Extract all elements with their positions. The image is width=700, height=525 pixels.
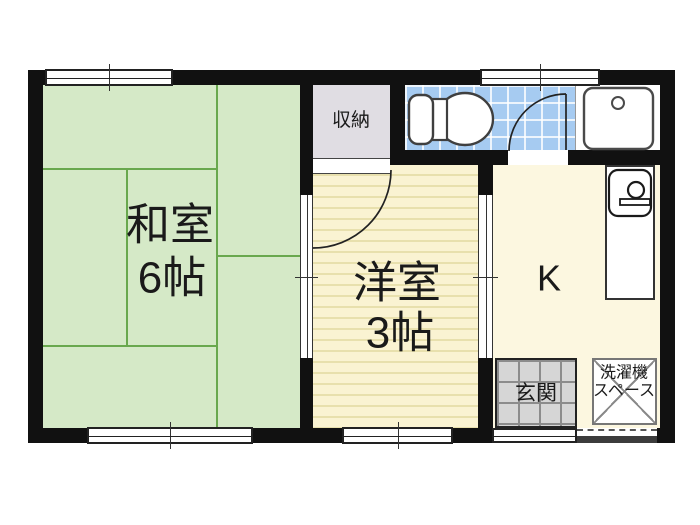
entrance-step: [577, 436, 657, 443]
window-icon: [480, 69, 600, 86]
washer-space-label: 洗濯機 スペース: [593, 365, 655, 402]
floor-plan: 和室 6帖 洋室 3帖 K 収納 玄関 洗濯機 スペース: [0, 0, 700, 525]
wall-left: [28, 70, 43, 443]
tatami-line: [43, 345, 216, 347]
washer-space-label-line1: 洗濯機: [593, 365, 655, 383]
washer-space-boundary: [577, 428, 657, 443]
room-size-western: 3帖: [366, 309, 434, 360]
tatami-line: [218, 255, 300, 257]
entrance-label: 玄関: [515, 382, 557, 406]
wall-western-kitchen: [478, 358, 493, 428]
door-tick: [295, 277, 318, 278]
washer-space-label-line2: スペース: [593, 383, 655, 401]
door-tick: [473, 277, 498, 278]
window-icon: [87, 427, 253, 444]
closet-label: 収納: [332, 110, 370, 132]
dashed-boundary-line: [577, 429, 657, 431]
basin-area: [575, 85, 660, 150]
room-size-japanese: 6帖: [138, 254, 206, 305]
tatami-line: [126, 168, 128, 347]
wall-closet-toilet: [390, 85, 405, 165]
room-label-kitchen: K: [537, 257, 561, 298]
window-icon: [342, 427, 453, 444]
tatami-line: [43, 168, 216, 170]
room-label-western: 洋室: [353, 259, 441, 310]
wall-right: [660, 70, 675, 443]
toilet-room: [405, 85, 575, 150]
sliding-door-western-kitchen: [478, 195, 493, 358]
closet-opening: [313, 158, 390, 174]
kitchen-counter: [605, 165, 655, 300]
wall-western-kitchen: [478, 150, 493, 195]
room-label-japanese: 和室: [126, 201, 214, 252]
window-icon: [45, 69, 173, 86]
toilet-door-opening: [508, 150, 568, 165]
sliding-door-japanese-western: [300, 195, 313, 358]
entrance-door: [492, 428, 577, 443]
